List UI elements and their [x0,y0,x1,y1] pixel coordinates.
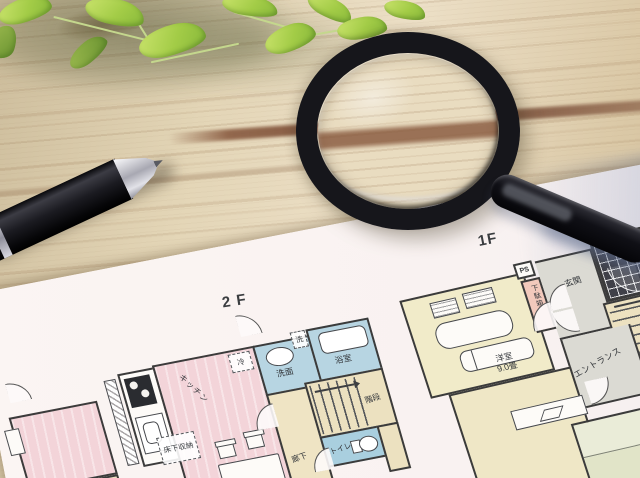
floor2-plan: 冷 キッチン 床下収納 洗面 洗 浴室 廊下 [105,311,417,478]
stairs-arrow-head [353,379,361,388]
cushion-symbol [462,287,497,309]
entrance-hall-label: 玄関 [563,275,583,289]
toilet-label: トイレ [329,442,354,457]
stove-symbol [124,374,158,408]
step-cabinet-detail [540,405,563,422]
door-arc [584,376,615,404]
door-arc [235,312,263,337]
chair-symbol [244,432,265,450]
chair-back [243,429,265,439]
stove-burner [129,381,139,390]
corridor-corner [376,422,411,473]
bathtub-symbol [317,324,370,354]
chair-back [214,438,236,448]
photo-scene: 2 F 1F 冷 キッチン 床下収納 [0,0,640,478]
floor2-title: 2 F [221,291,248,312]
japanese-room-label: 和室 6.0畳 [628,417,640,446]
magnifier-rim [296,32,520,230]
sofa-armrest [471,350,479,369]
door-arc [5,380,32,403]
entrance-label: エントランス [572,346,623,380]
stairs-label: 階段 [363,392,382,405]
partial-room [9,401,118,478]
washbasin-symbol [263,345,296,369]
hallway-label: 廊下 [290,451,309,465]
floor1-title: 1F [477,229,499,249]
cushion-symbol [429,297,460,318]
kitchen-label: キッチン [177,373,210,405]
stove-burner [140,389,150,398]
refrigerator-symbol: 冷 [228,351,255,374]
pipe-space: PS [513,260,536,280]
chair-symbol [216,442,237,460]
floor1-plan: 洋室 9.0畳 PS 下駄箱 玄関 エントラ [392,230,640,478]
bathroom-label: 浴室 [334,353,353,366]
washroom-label: 洗面 [275,367,294,380]
